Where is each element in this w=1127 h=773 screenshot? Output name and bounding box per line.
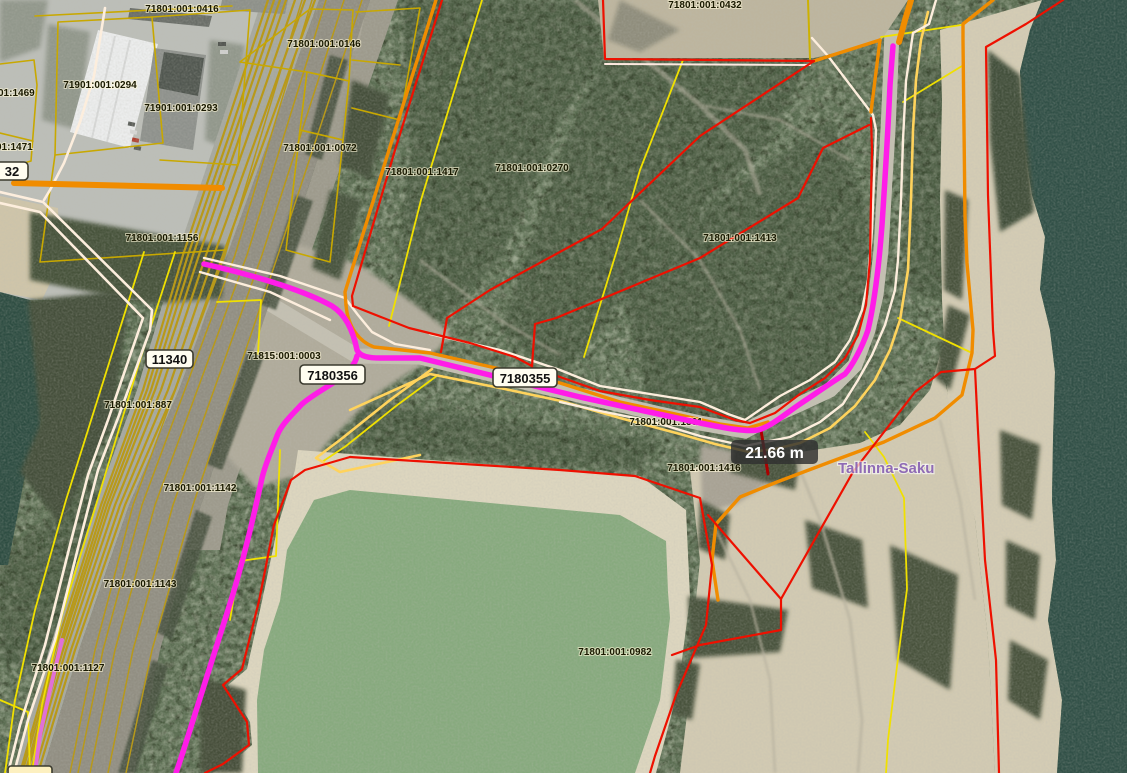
svg-text:71901:001:1471: 71901:001:1471 (0, 142, 33, 153)
svg-text:71801:001:1413: 71801:001:1413 (703, 233, 777, 244)
svg-text:71801:001:0982: 71801:001:0982 (578, 647, 652, 658)
svg-text:71815:001:0003: 71815:001:0003 (247, 351, 321, 362)
svg-text:Tallinna-Saku: Tallinna-Saku (838, 460, 934, 477)
svg-text:11340: 11340 (152, 352, 187, 367)
svg-text:7180355: 7180355 (500, 371, 551, 386)
svg-text:71801:001:0072: 71801:001:0072 (283, 143, 357, 154)
svg-text:71801:001:0432: 71801:001:0432 (668, 0, 742, 11)
svg-text:71801:001:1142: 71801:001:1142 (164, 483, 237, 494)
svg-text:71801:001:1127: 71801:001:1127 (32, 663, 105, 674)
svg-text:71801:001:1416: 71801:001:1416 (667, 463, 741, 474)
svg-text:71801:001:1156: 71801:001:1156 (126, 233, 199, 244)
svg-text:32: 32 (5, 164, 19, 179)
svg-text:71901:001:0293: 71901:001:0293 (144, 103, 218, 114)
svg-text:71801:001:1143: 71801:001:1143 (104, 579, 177, 590)
svg-text:71801:001:0146: 71801:001:0146 (287, 39, 361, 50)
svg-text:71801:001:887: 71801:001:887 (104, 400, 172, 411)
svg-text:7180356: 7180356 (307, 368, 358, 383)
svg-text:71901:001:0294: 71901:001:0294 (63, 80, 137, 91)
svg-text:71801:001:1417: 71801:001:1417 (385, 167, 459, 178)
svg-text:71801:001:0270: 71801:001:0270 (495, 163, 569, 174)
svg-text:71801:001:0416: 71801:001:0416 (145, 4, 219, 15)
svg-text:21.66 m: 21.66 m (745, 445, 804, 462)
svg-text:71901:001:1469: 71901:001:1469 (0, 88, 35, 99)
